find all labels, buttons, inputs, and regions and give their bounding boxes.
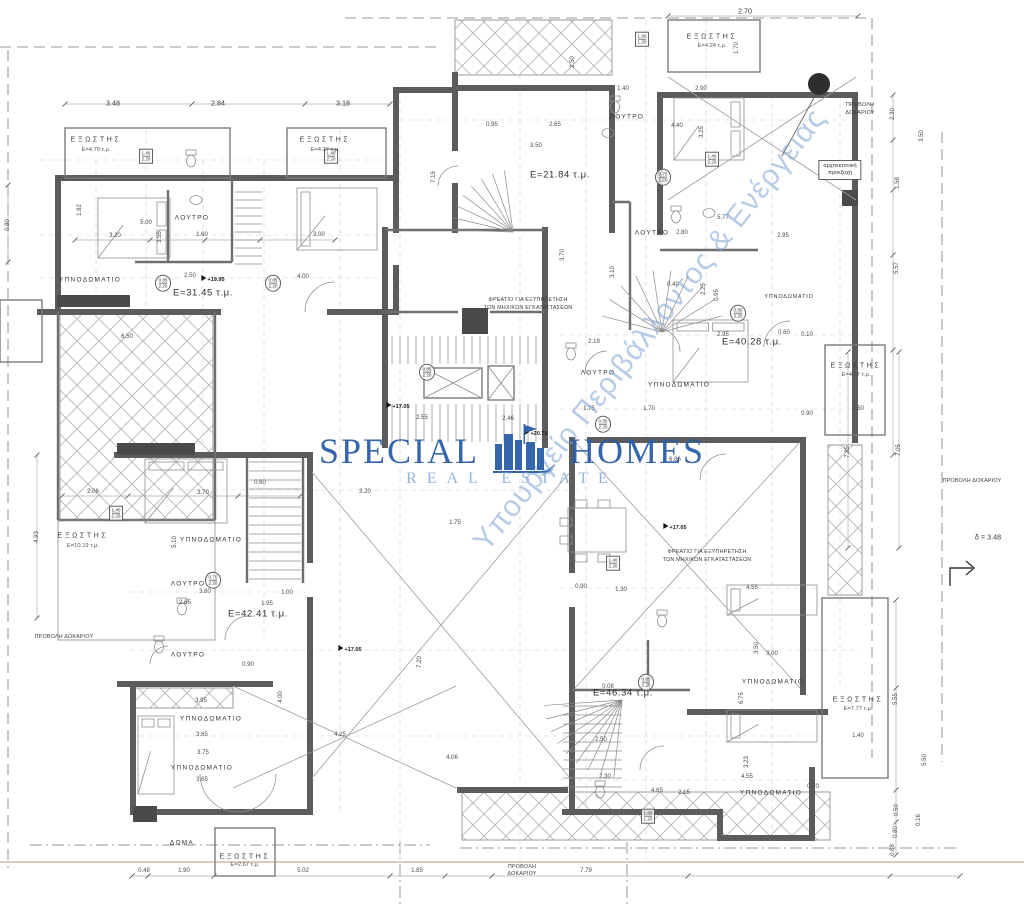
hatch-layer <box>60 20 862 840</box>
elevator-shaft <box>424 366 514 400</box>
north-mark <box>950 561 974 586</box>
survey-marker-dot <box>808 73 830 95</box>
floor-plan-canvas: Υπουργείο Περιβάλλοντος & Ενέργειας SPEC… <box>0 0 1024 910</box>
floor-plan-drawing <box>0 0 1024 910</box>
